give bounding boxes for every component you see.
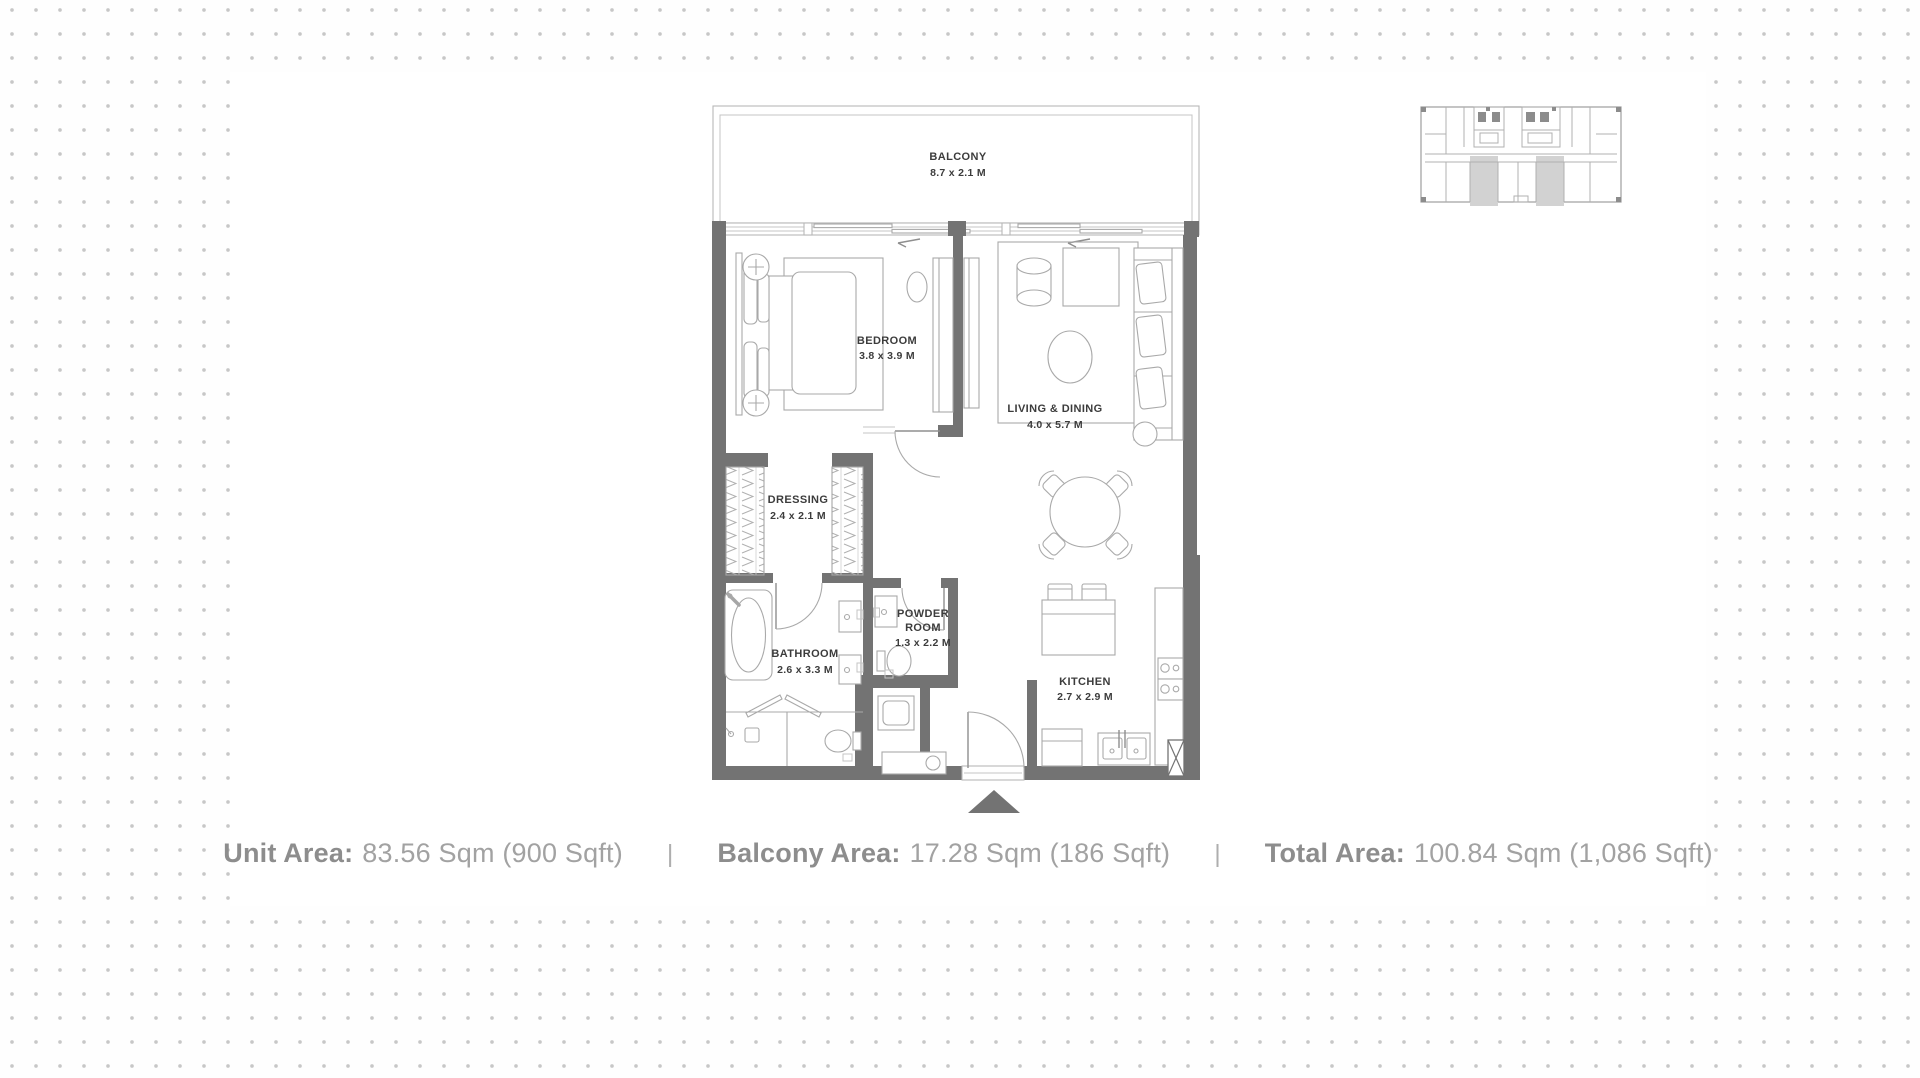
bathroom-dims: 2.6 x 3.3 M bbox=[777, 664, 833, 676]
wardrobe bbox=[726, 467, 764, 575]
powder-room: POWDER ROOM 1.3 x 2.2 M bbox=[874, 588, 951, 678]
powder-sink bbox=[874, 596, 898, 627]
kitchen-sink bbox=[1098, 730, 1150, 765]
unit-area-label: Unit Area: bbox=[223, 838, 353, 868]
balcony: BALCONY 8.7 x 2.1 M bbox=[713, 106, 1199, 223]
bathroom-sink bbox=[839, 655, 863, 684]
floor-plan-page: BALCONY 8.7 x 2.1 M bbox=[0, 0, 1920, 1078]
powder-label-2: ROOM bbox=[905, 622, 941, 634]
coffee-table bbox=[1048, 331, 1092, 383]
separator: | bbox=[1214, 840, 1221, 869]
entry-bench bbox=[882, 752, 946, 774]
living-dining: LIVING & DINING 4.0 x 5.7 M bbox=[964, 242, 1183, 446]
key-plan-highlighted-unit bbox=[1470, 156, 1498, 206]
balcony-area: Balcony Area:17.28 Sqm (186 Sqft) bbox=[717, 838, 1170, 869]
shower bbox=[726, 728, 759, 742]
bathroom-label: BATHROOM bbox=[771, 648, 838, 660]
dressing: DRESSING 2.4 x 2.1 M bbox=[726, 467, 863, 575]
stool bbox=[1082, 584, 1106, 601]
side-table bbox=[1133, 422, 1157, 446]
entrance-door bbox=[968, 712, 1024, 768]
balcony-dims: 8.7 x 2.1 M bbox=[930, 167, 986, 179]
washing-machine-icon bbox=[878, 696, 914, 730]
bedroom-dims: 3.8 x 3.9 M bbox=[859, 350, 915, 362]
sofa bbox=[1134, 248, 1183, 440]
side-unit bbox=[1063, 248, 1119, 306]
dressing-label: DRESSING bbox=[768, 494, 829, 506]
armchair bbox=[1017, 258, 1051, 306]
bedside-lamp-icon bbox=[743, 390, 769, 416]
bathroom-door bbox=[776, 583, 822, 629]
stool bbox=[1048, 584, 1072, 601]
bedside-lamp-icon bbox=[743, 254, 769, 280]
key-plan-highlighted-unit bbox=[1536, 156, 1564, 206]
unit-area-value: 83.56 Sqm (900 Sqft) bbox=[362, 838, 623, 868]
swing-doors bbox=[746, 695, 821, 717]
kitchen-island bbox=[1042, 600, 1115, 655]
bathtub bbox=[725, 590, 772, 680]
stove-icon bbox=[1158, 658, 1183, 700]
dressing-dims: 2.4 x 2.1 M bbox=[770, 510, 826, 522]
wardrobe bbox=[832, 467, 863, 575]
dining-set bbox=[1039, 471, 1132, 559]
dining-table bbox=[1050, 477, 1120, 547]
total-area-label: Total Area: bbox=[1265, 838, 1405, 868]
bedroom-dresser bbox=[933, 258, 953, 412]
unit-area: Unit Area:83.56 Sqm (900 Sqft) bbox=[223, 838, 623, 869]
key-plan bbox=[1420, 104, 1622, 214]
bathroom: BATHROOM 2.6 x 3.3 M bbox=[725, 583, 863, 766]
living-label: LIVING & DINING bbox=[1007, 403, 1102, 415]
bedroom-label: BEDROOM bbox=[857, 335, 917, 347]
living-dims: 4.0 x 5.7 M bbox=[1027, 419, 1083, 431]
kitchen: KITCHEN 2.7 x 2.9 M bbox=[1042, 584, 1184, 776]
total-area: Total Area:100.84 Sqm (1,086 Sqft) bbox=[1265, 838, 1713, 869]
toilet-icon bbox=[877, 646, 911, 678]
bathroom-sink bbox=[839, 601, 863, 632]
balcony-area-label: Balcony Area: bbox=[717, 838, 900, 868]
powder-dims: 1.3 x 2.2 M bbox=[895, 637, 951, 649]
powder-label: POWDER bbox=[897, 608, 949, 620]
kitchen-label: KITCHEN bbox=[1059, 676, 1111, 688]
shaft bbox=[1168, 740, 1184, 776]
balcony-area-value: 17.28 Sqm (186 Sqft) bbox=[910, 838, 1171, 868]
bedroom-door bbox=[895, 431, 940, 477]
headboard bbox=[736, 253, 742, 415]
unit-floor-plan: BALCONY 8.7 x 2.1 M bbox=[706, 100, 1206, 820]
bedroom-chair bbox=[907, 272, 927, 302]
total-area-value: 100.84 Sqm (1,086 Sqft) bbox=[1414, 838, 1713, 868]
tv-console bbox=[964, 258, 979, 408]
entry-arrow-icon bbox=[968, 790, 1020, 813]
area-summary: Unit Area:83.56 Sqm (900 Sqft) | Balcony… bbox=[230, 838, 1706, 869]
kitchen-dims: 2.7 x 2.9 M bbox=[1057, 691, 1113, 703]
entry-cabinet bbox=[1042, 729, 1082, 766]
bedroom: BEDROOM 3.8 x 3.9 M bbox=[736, 253, 953, 477]
separator: | bbox=[667, 840, 674, 869]
balcony-label: BALCONY bbox=[929, 151, 986, 163]
